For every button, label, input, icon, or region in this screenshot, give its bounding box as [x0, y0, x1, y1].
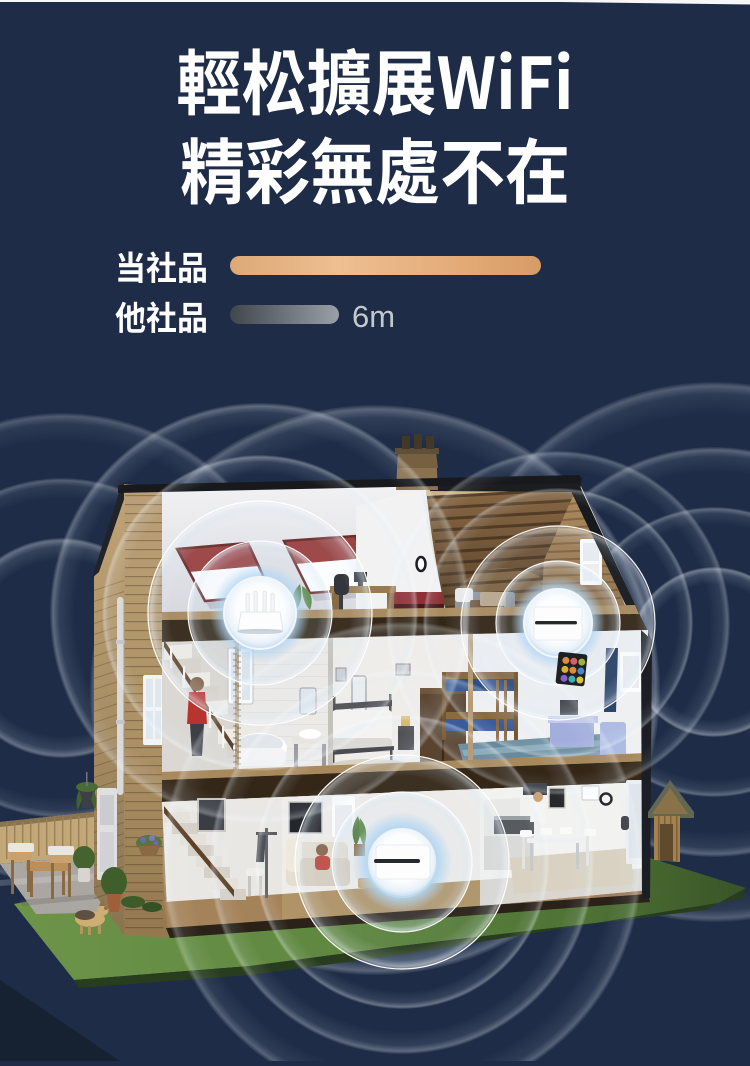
svg-text:6m: 6m	[352, 299, 395, 334]
